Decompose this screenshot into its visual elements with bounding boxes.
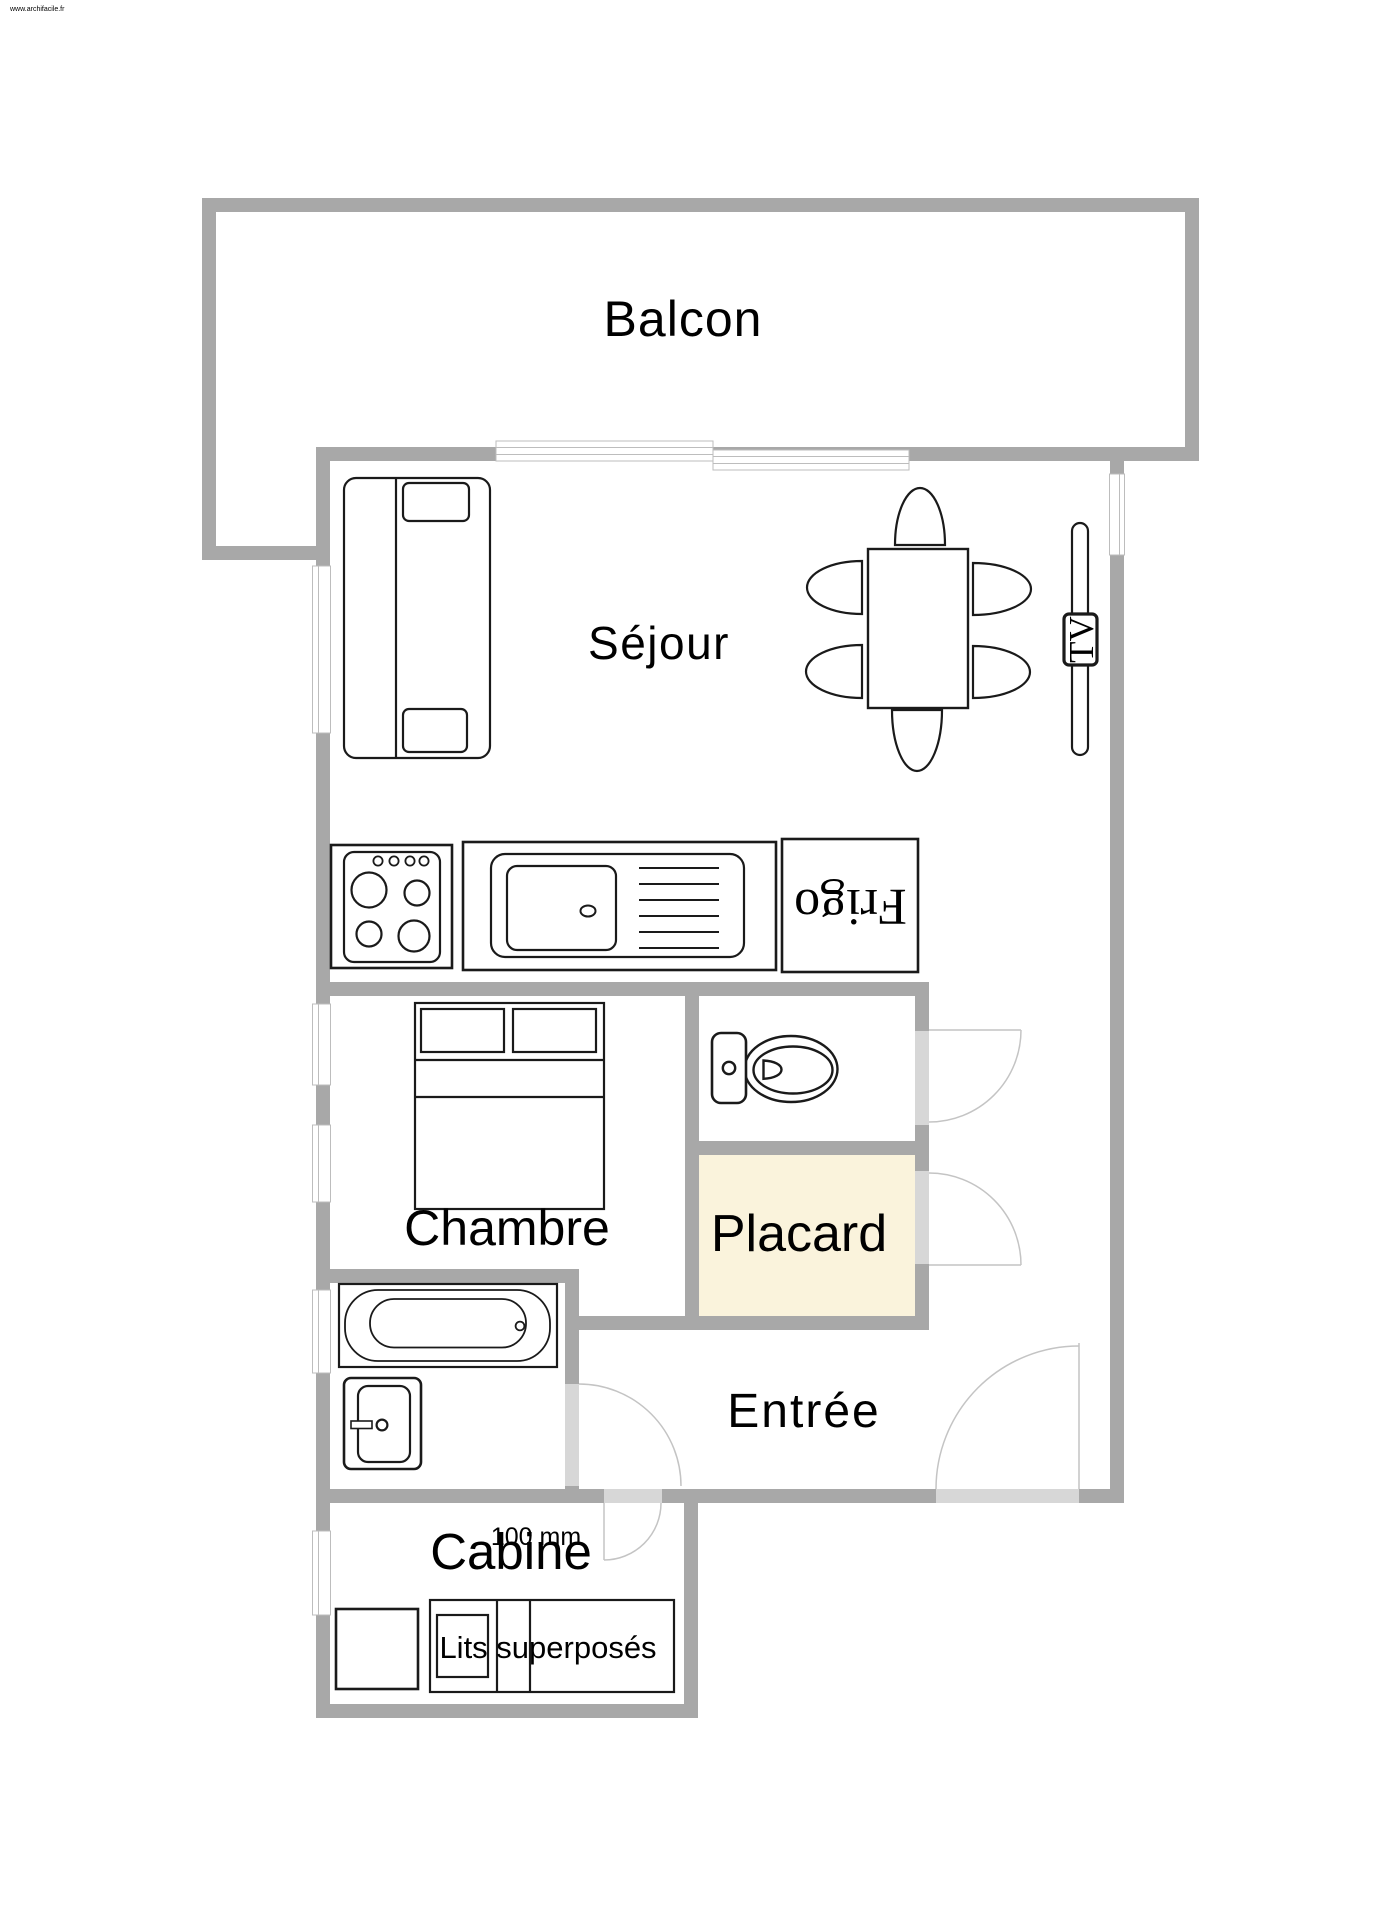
svg-text:Séjour: Séjour	[588, 617, 730, 669]
svg-text:www.archifacile.fr: www.archifacile.fr	[9, 6, 65, 13]
svg-text:TV: TV	[1062, 616, 1101, 663]
svg-text:100 mm: 100 mm	[491, 1523, 581, 1551]
svg-text:Balcon: Balcon	[604, 291, 763, 347]
svg-text:Entrée: Entrée	[727, 1385, 880, 1438]
svg-text:Lits superposés: Lits superposés	[439, 1630, 656, 1665]
svg-text:Placard: Placard	[711, 1205, 887, 1263]
svg-text:Frigo: Frigo	[794, 878, 907, 935]
svg-text:Chambre: Chambre	[404, 1200, 610, 1256]
